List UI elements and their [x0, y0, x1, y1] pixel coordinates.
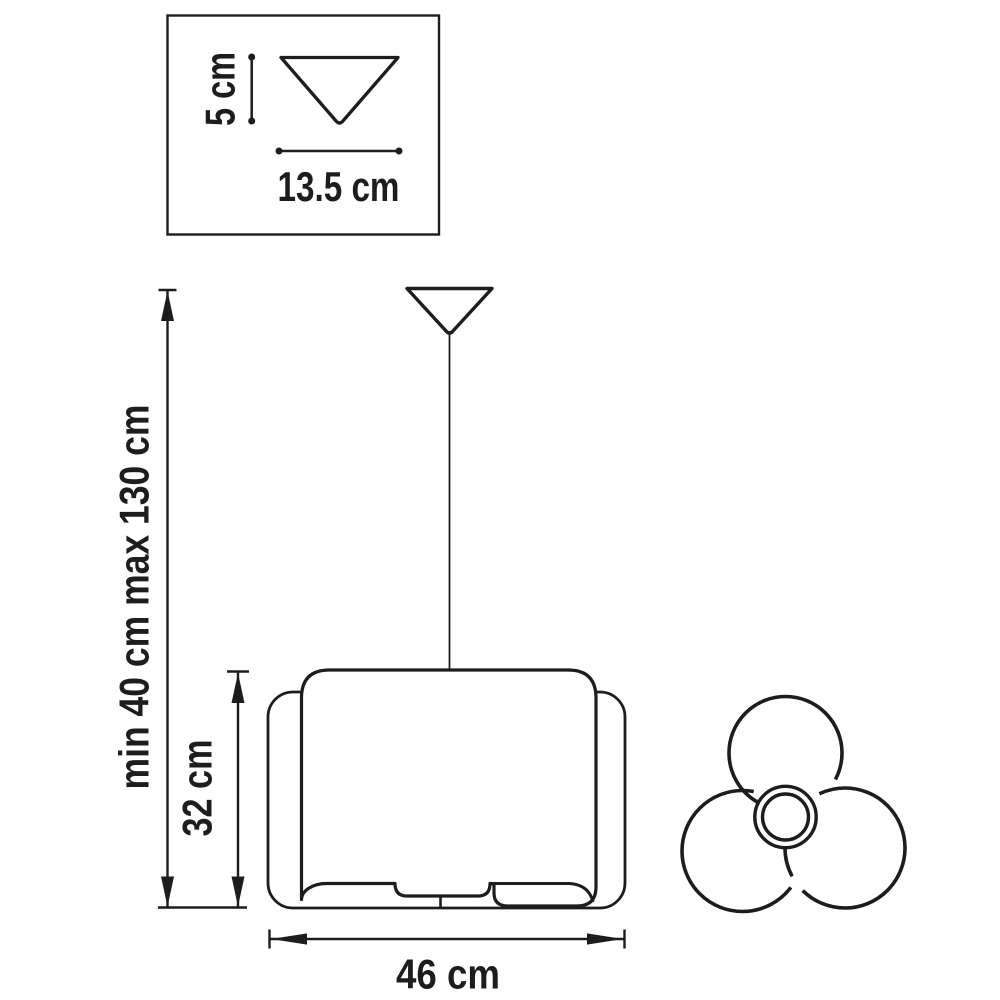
dim-end-dot: [276, 148, 283, 155]
dim-end-dot: [248, 118, 255, 125]
shade-width-label: 46 cm: [396, 951, 500, 998]
dim-end-dot: [248, 54, 255, 61]
shade-front-layer: [302, 670, 597, 906]
drawing-canvas: 5 cm 13.5 cm min 40 cm max 130 cm 32 cm: [0, 0, 1000, 1000]
shade-height-label: 32 cm: [174, 740, 221, 837]
dim-end-dot: [396, 148, 403, 155]
suspension-range-label: min 40 cm max 130 cm: [111, 405, 158, 790]
inset-height-label: 5 cm: [197, 52, 244, 126]
inset-width-label: 13.5 cm: [278, 163, 400, 210]
lamp-dimensional-drawing: 5 cm 13.5 cm min 40 cm max 130 cm 32 cm: [0, 0, 1000, 1000]
